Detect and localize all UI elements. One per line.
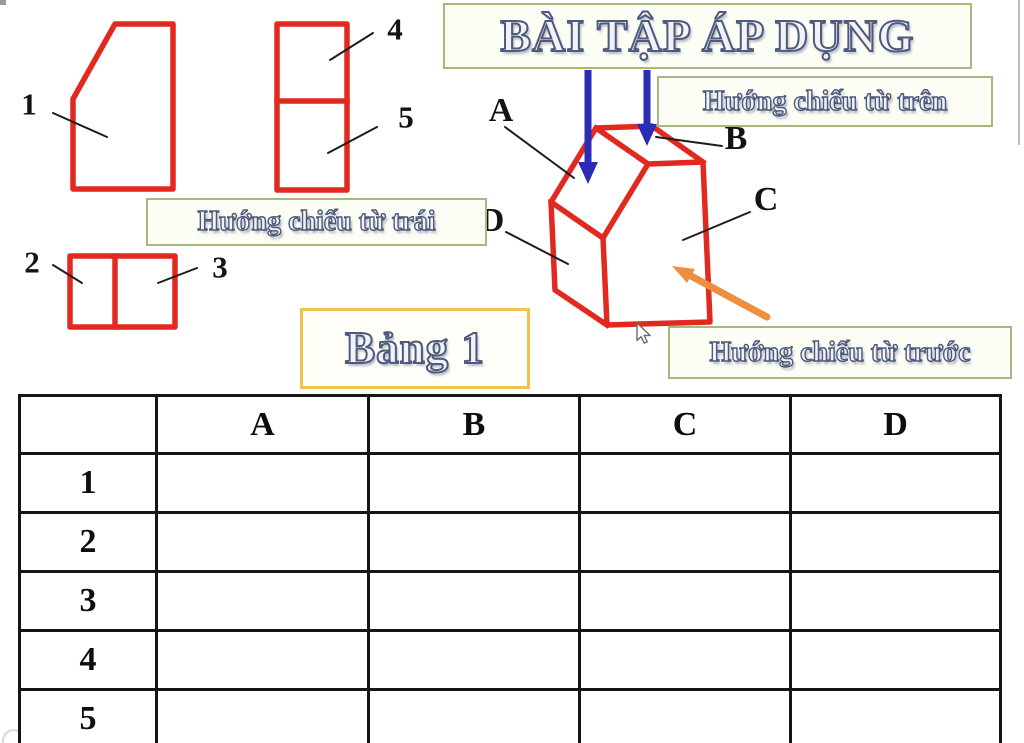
mouse-cursor-icon [0, 0, 1024, 743]
slide: 1 2 3 4 5 A B C D BÀI TẬP ÁP DỤNG Hướng … [0, 0, 1024, 743]
